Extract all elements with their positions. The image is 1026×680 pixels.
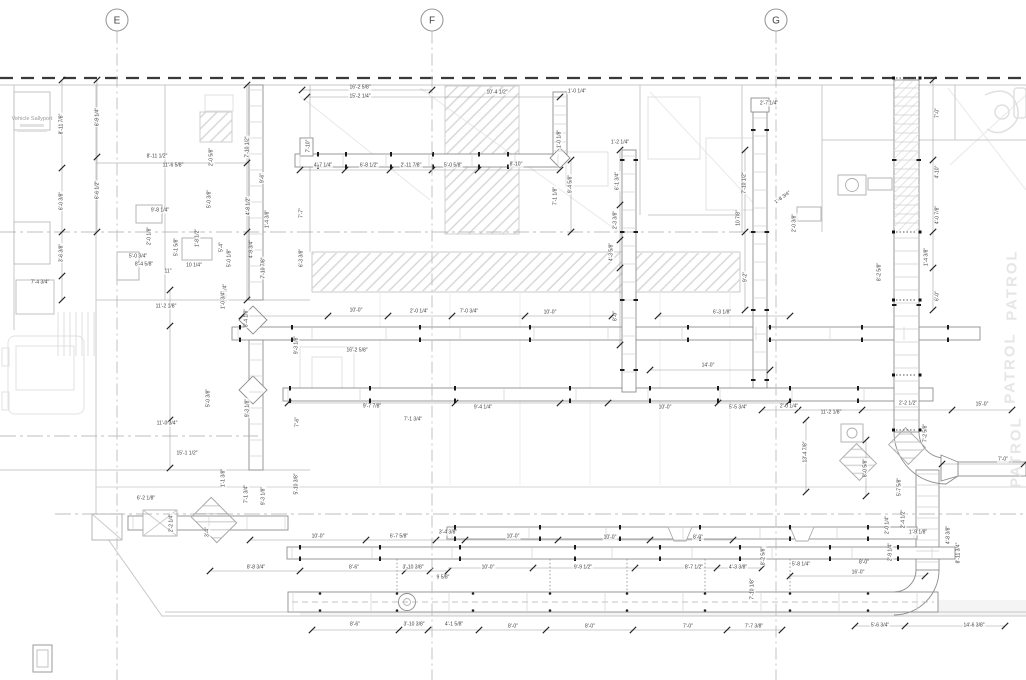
shaft-dot [892, 231, 895, 234]
corner-symbol [33, 645, 52, 672]
flange-mark [454, 525, 456, 530]
flange-dot [319, 609, 322, 612]
flange-dot [549, 592, 552, 595]
flange-mark [765, 379, 770, 381]
flange-dot [396, 609, 399, 612]
flange-mark [317, 165, 319, 170]
flange-mark [454, 386, 456, 391]
flange-mark [369, 399, 371, 404]
shaft-dot [919, 374, 922, 377]
flange-mark [867, 525, 869, 530]
flange-mark [751, 129, 756, 131]
fixture-outline [985, 88, 1026, 133]
flange-mark [649, 386, 651, 391]
vehicle-outline [2, 336, 84, 414]
flange-mark [454, 399, 456, 404]
flange-mark [829, 545, 831, 550]
flange-mark [751, 379, 756, 381]
flange-mark [892, 159, 897, 161]
flange-mark [857, 399, 859, 404]
flange-dot [789, 609, 792, 612]
flange-mark [569, 399, 571, 404]
flange-mark [867, 537, 869, 542]
flange-mark [454, 537, 456, 542]
flange-mark [699, 537, 701, 542]
flange-mark [687, 338, 689, 343]
flange-mark [634, 299, 639, 301]
flange-mark [620, 369, 625, 371]
flange-dot [867, 592, 870, 595]
floor-plan-canvas: EFG 16'-2 5/8"15'-2 1/4"10'-4 1/2"1'-0 1… [0, 0, 1026, 680]
flange-mark [289, 399, 291, 404]
flange-mark [507, 152, 509, 157]
shaft-dot [919, 77, 922, 80]
flange-mark [789, 525, 791, 530]
flange-mark [619, 537, 621, 542]
diagonal-duct-pieces [191, 428, 925, 543]
flange-mark [634, 369, 639, 371]
flange-mark [649, 399, 651, 404]
flange-mark [507, 165, 509, 170]
flange-mark [717, 399, 719, 404]
flange-mark [789, 537, 791, 542]
flange-mark [478, 152, 480, 157]
flange-dot [789, 592, 792, 595]
shaft-dot [919, 231, 922, 234]
flange-mark [379, 557, 381, 562]
duct-elbows [239, 148, 958, 615]
flange-mark [699, 525, 701, 530]
flange-mark [739, 545, 741, 550]
flange-mark [751, 231, 756, 233]
shaft-dot [892, 374, 895, 377]
flange-mark [861, 325, 863, 330]
flange-dot [472, 592, 475, 595]
flange-mark [769, 325, 771, 330]
flange-dot [867, 609, 870, 612]
room-name: Vehicle Sallyport [6, 116, 58, 123]
flange-mark [345, 152, 347, 157]
flange-mark [892, 304, 897, 306]
flange-mark [299, 545, 301, 550]
flange-mark [459, 557, 461, 562]
flange-mark [897, 545, 899, 550]
flange-mark [659, 557, 661, 562]
flange-mark [620, 159, 625, 161]
flange-mark [369, 386, 371, 391]
flange-mark [897, 557, 899, 562]
flange-dot [626, 609, 629, 612]
flange-mark [717, 386, 719, 391]
flange-mark [574, 557, 576, 562]
shaft-dot [919, 429, 922, 432]
flange-mark [751, 309, 756, 311]
flange-mark [659, 545, 661, 550]
shaft-dot [892, 77, 895, 80]
flange-mark [620, 299, 625, 301]
flange-dot [704, 609, 707, 612]
flange-mark [917, 304, 922, 306]
flange-mark [917, 159, 922, 161]
flange-mark [789, 386, 791, 391]
flange-dot [549, 609, 552, 612]
flange-mark [539, 537, 541, 542]
flange-mark [619, 525, 621, 530]
grid-bubble-label: F [429, 16, 435, 27]
flange-mark [765, 309, 770, 311]
flange-mark [459, 545, 461, 550]
grid-bubble-label: G [772, 16, 780, 27]
flange-mark [291, 325, 293, 330]
flange-mark [765, 129, 770, 131]
flange-mark [634, 159, 639, 161]
flange-mark [569, 386, 571, 391]
room-number-placeholder [20, 124, 44, 127]
generated-annotations: EFG [58, 9, 1026, 680]
flange-dot [472, 609, 475, 612]
flange-mark [947, 325, 949, 330]
flange-dot [396, 592, 399, 595]
flange-mark [317, 152, 319, 157]
shaft-dot [892, 429, 895, 432]
flange-mark [539, 525, 541, 530]
flange-mark [239, 325, 241, 330]
flange-mark [829, 557, 831, 562]
flange-mark [857, 386, 859, 391]
flange-mark [345, 165, 347, 170]
shaft-dot [892, 299, 895, 302]
flange-mark [379, 545, 381, 550]
flange-mark [239, 338, 241, 343]
flange-mark [789, 399, 791, 404]
flange-mark [947, 338, 949, 343]
flange-dot [704, 592, 707, 595]
flange-dot [626, 592, 629, 595]
drawing-svg: EFG [0, 0, 1026, 680]
flange-mark [299, 557, 301, 562]
flange-mark [861, 338, 863, 343]
flange-mark [574, 545, 576, 550]
flange-mark [769, 338, 771, 343]
flange-mark [529, 325, 531, 330]
flange-mark [478, 165, 480, 170]
shaft-hatch [894, 81, 919, 231]
flange-mark [687, 325, 689, 330]
grid-bubble-label: E [114, 16, 121, 27]
shaft-dot [919, 299, 922, 302]
flange-mark [634, 231, 639, 233]
flange-mark [620, 231, 625, 233]
room-area-placeholder [17, 129, 47, 132]
flange-mark [289, 386, 291, 391]
flange-dot [319, 592, 322, 595]
flange-mark [390, 165, 392, 170]
flange-mark [765, 231, 770, 233]
duct-runs [128, 80, 1026, 612]
flange-mark [291, 338, 293, 343]
flange-mark [419, 325, 421, 330]
room-tag: Vehicle Sallyport [6, 116, 58, 132]
flange-mark [390, 152, 392, 157]
flange-mark [529, 338, 531, 343]
flange-mark [739, 557, 741, 562]
flange-mark [419, 338, 421, 343]
hatch-regions [200, 86, 740, 291]
